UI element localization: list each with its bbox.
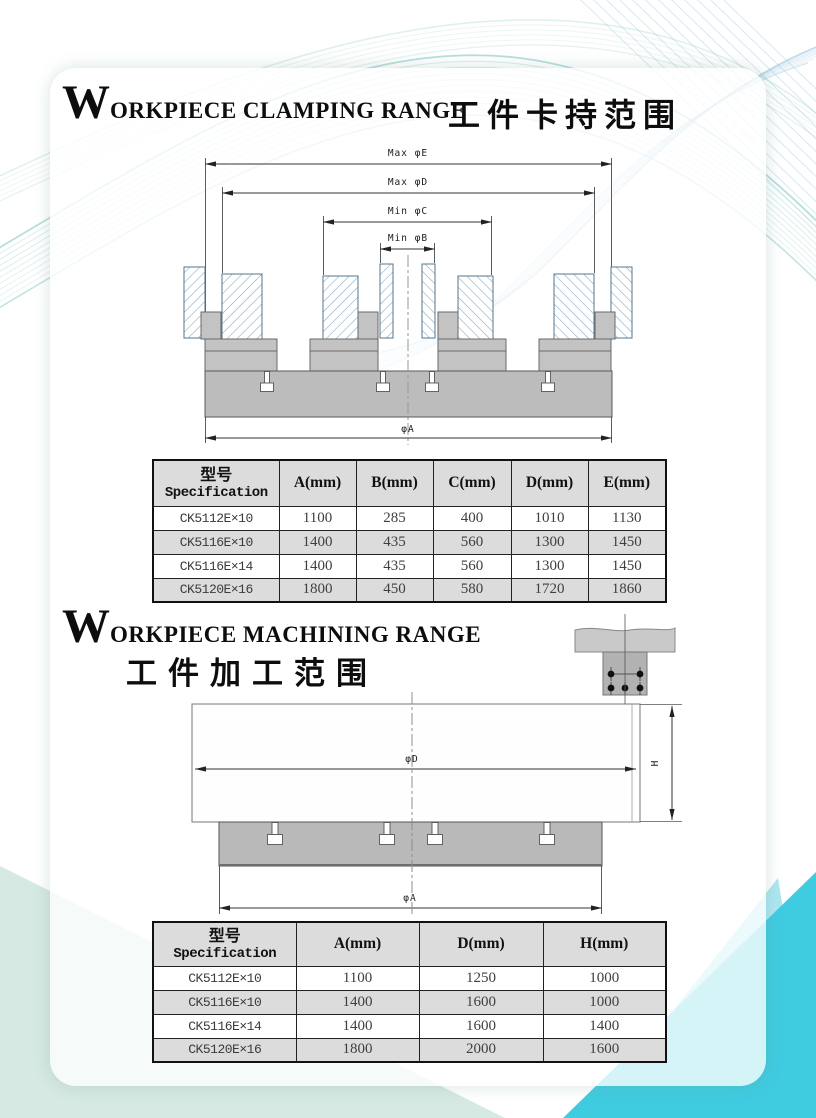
col-header: A(mm) xyxy=(279,460,356,506)
workpiece xyxy=(458,276,493,340)
spec-header-zh: 型号 xyxy=(154,465,279,485)
value-cell: 1000 xyxy=(543,990,666,1014)
title-text: ORKPIECE CLAMPING RANGE xyxy=(110,98,467,123)
jaw-step xyxy=(438,312,458,339)
value-cell: 1400 xyxy=(279,554,356,578)
value-cell: 2000 xyxy=(419,1038,543,1062)
value-cell: 1010 xyxy=(511,506,588,530)
value-cell: 580 xyxy=(433,578,511,602)
table-row: CK5120E×16 1800 450 580 1720 1860 xyxy=(153,578,666,602)
dim-label-phi-a: φA xyxy=(401,424,414,435)
table-header-row: 型号 Specification A(mm) B(mm) C(mm) D(mm)… xyxy=(153,460,666,506)
table-row: CK5120E×16 1800 2000 1600 xyxy=(153,1038,666,1062)
clamping-range-title-en: WORKPIECE CLAMPING RANGE xyxy=(62,84,467,124)
clamping-range-table: 型号 Specification A(mm) B(mm) C(mm) D(mm)… xyxy=(152,459,667,603)
value-cell: 1000 xyxy=(543,966,666,990)
spec-header-cell: 型号 Specification xyxy=(153,922,296,966)
jaw-step xyxy=(358,312,378,339)
dim-label-min-c: Min φC xyxy=(388,206,428,217)
value-cell: 1100 xyxy=(279,506,356,530)
title-text: ORKPIECE MACHINING RANGE xyxy=(110,622,481,647)
value-cell: 1100 xyxy=(296,966,419,990)
clamping-range-diagram: Max φE Max φD Min φC Min φB xyxy=(165,143,645,455)
workpiece xyxy=(422,264,435,338)
table-header-row: 型号 Specification A(mm) D(mm) H(mm) xyxy=(153,922,666,966)
spec-header-cell: 型号 Specification xyxy=(153,460,279,506)
bolt-dot xyxy=(608,671,615,678)
dim-label-min-b: Min φB xyxy=(388,233,428,244)
machining-range-title-zh: 工件加工范围 xyxy=(126,648,378,693)
machining-range-title-en: WORKPIECE MACHINING RANGE xyxy=(62,608,481,648)
bolt-dot xyxy=(637,671,644,678)
table-row: CK5112E×10 1100 285 400 1010 1130 xyxy=(153,506,666,530)
model-cell: CK5120E×16 xyxy=(153,578,279,602)
value-cell: 1450 xyxy=(588,530,666,554)
value-cell: 1800 xyxy=(279,578,356,602)
value-cell: 1400 xyxy=(543,1014,666,1038)
col-header: C(mm) xyxy=(433,460,511,506)
value-cell: 1860 xyxy=(588,578,666,602)
jaw-block xyxy=(438,339,506,371)
machining-range-diagram: H φD φA xyxy=(165,690,695,920)
value-cell: 400 xyxy=(433,506,511,530)
spec-header-en: Specification xyxy=(154,485,279,502)
title-dropcap: W xyxy=(62,76,110,129)
value-cell: 285 xyxy=(356,506,433,530)
value-cell: 435 xyxy=(356,530,433,554)
workpiece xyxy=(222,274,262,340)
value-cell: 1600 xyxy=(543,1038,666,1062)
phi-a-dimension xyxy=(219,866,602,914)
value-cell: 1600 xyxy=(419,990,543,1014)
value-cell: 1800 xyxy=(296,1038,419,1062)
col-header: A(mm) xyxy=(296,922,419,966)
table-row: CK5116E×10 1400 435 560 1300 1450 xyxy=(153,530,666,554)
h-dimension xyxy=(640,705,682,822)
value-cell: 435 xyxy=(356,554,433,578)
col-header: E(mm) xyxy=(588,460,666,506)
workpiece xyxy=(554,274,594,340)
col-header: H(mm) xyxy=(543,922,666,966)
value-cell: 1250 xyxy=(419,966,543,990)
spec-header-zh: 型号 xyxy=(154,926,296,946)
value-cell: 450 xyxy=(356,578,433,602)
workpiece xyxy=(380,264,393,338)
dim-label-h: H xyxy=(650,760,661,767)
dim-label-max-e: Max φE xyxy=(388,148,428,159)
col-header: D(mm) xyxy=(511,460,588,506)
table-row: CK5116E×10 1400 1600 1000 xyxy=(153,990,666,1014)
value-cell: 1600 xyxy=(419,1014,543,1038)
value-cell: 1300 xyxy=(511,530,588,554)
clamping-range-title-zh: 工件卡持范围 xyxy=(448,90,682,136)
table-row: CK5112E×10 1100 1250 1000 xyxy=(153,966,666,990)
table-row: CK5116E×14 1400 435 560 1300 1450 xyxy=(153,554,666,578)
value-cell: 1450 xyxy=(588,554,666,578)
catalog-page: WORKPIECE CLAMPING RANGE 工件卡持范围 xyxy=(0,0,816,1118)
value-cell: 1130 xyxy=(588,506,666,530)
model-cell: CK5116E×10 xyxy=(153,990,296,1014)
value-cell: 1720 xyxy=(511,578,588,602)
value-cell: 1400 xyxy=(296,1014,419,1038)
jaw-step xyxy=(201,312,221,339)
value-cell: 1400 xyxy=(279,530,356,554)
model-cell: CK5116E×14 xyxy=(153,1014,296,1038)
dim-label-phi-a: φA xyxy=(403,893,416,904)
jaw-step xyxy=(595,312,615,339)
jaw-block xyxy=(539,339,611,371)
model-cell: CK5112E×10 xyxy=(153,966,296,990)
value-cell: 1400 xyxy=(296,990,419,1014)
workpiece xyxy=(323,276,358,340)
spec-header-en: Specification xyxy=(154,946,296,963)
model-cell: CK5116E×14 xyxy=(153,554,279,578)
model-cell: CK5116E×10 xyxy=(153,530,279,554)
model-cell: CK5112E×10 xyxy=(153,506,279,530)
col-header: D(mm) xyxy=(419,922,543,966)
machining-range-table: 型号 Specification A(mm) D(mm) H(mm) CK511… xyxy=(152,921,667,1063)
title-dropcap: W xyxy=(62,600,110,653)
value-cell: 560 xyxy=(433,530,511,554)
value-cell: 1300 xyxy=(511,554,588,578)
col-header: B(mm) xyxy=(356,460,433,506)
dim-label-max-d: Max φD xyxy=(388,177,428,188)
model-cell: CK5120E×16 xyxy=(153,1038,296,1062)
value-cell: 560 xyxy=(433,554,511,578)
table-row: CK5116E×14 1400 1600 1400 xyxy=(153,1014,666,1038)
jaw-block xyxy=(310,339,378,371)
jaw-block xyxy=(205,339,277,371)
